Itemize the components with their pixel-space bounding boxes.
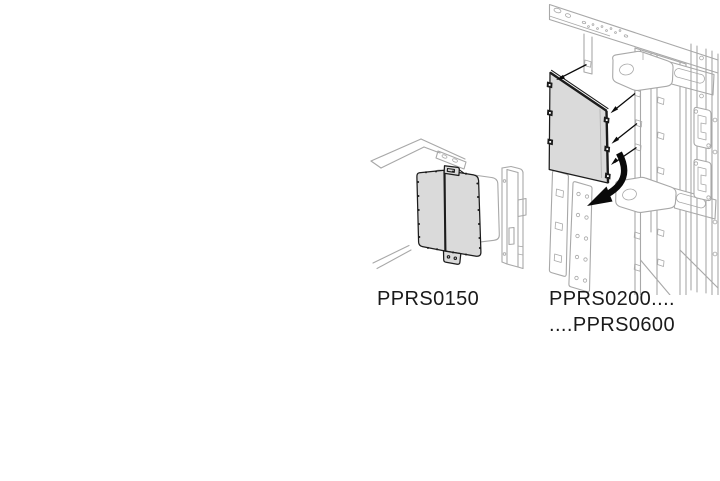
side-panel (547, 70, 611, 183)
screw-arrow-icon (615, 124, 637, 141)
panel-left-plate (417, 170, 445, 251)
fixing-strip-right (569, 182, 592, 292)
label-pprs0600-line2: ....PPRS0600 (549, 314, 675, 336)
label-pprs0200-line1: PPRS0200.... (549, 288, 675, 310)
screw-arrow-icon (614, 94, 635, 111)
page: PPRS0150 PPRS0200.... ....PPRS0600 (0, 0, 720, 481)
label-pprs0150: PPRS0150 (377, 286, 479, 312)
screw-arrow-icon (561, 65, 587, 78)
top-hinge-bracket (613, 51, 714, 95)
top-fixing-tab (444, 166, 459, 176)
fixing-strips (549, 171, 592, 292)
panel-right-plate (445, 170, 481, 256)
label-pprs0200-0600: PPRS0200.... ....PPRS0600 (549, 286, 675, 338)
blind-panel (417, 166, 481, 265)
fixing-strip-left (549, 171, 568, 277)
pprs0150-illustration (368, 136, 533, 301)
pprs0200-0600-illustration (540, 0, 720, 295)
